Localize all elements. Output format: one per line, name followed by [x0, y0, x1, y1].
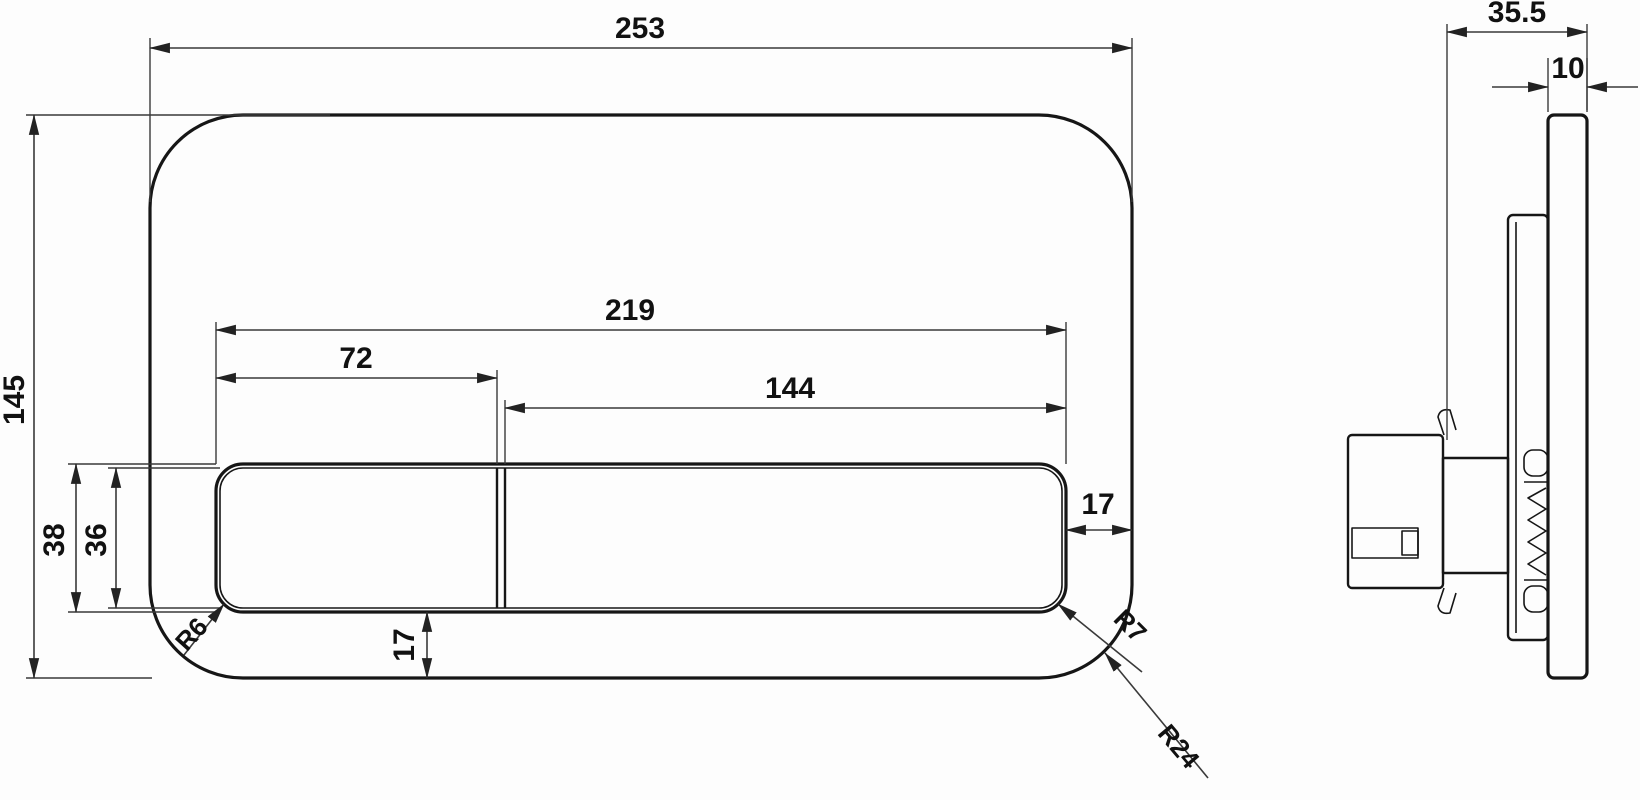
- dim-large-button-width: 144: [505, 372, 1066, 464]
- dim-button-area-width: 219: [216, 294, 1066, 464]
- side-actuator-neck: [1443, 458, 1508, 573]
- dim-label-button-inner-height: 36: [80, 523, 113, 556]
- side-spring-detail: [1524, 450, 1548, 612]
- dim-label-button-area-height: 38: [38, 523, 71, 556]
- side-mechanism-box: [1348, 435, 1443, 588]
- dim-button-area-height: 38: [38, 464, 216, 612]
- dim-small-button-width: 72: [216, 342, 497, 464]
- dim-label-small-button-width: 72: [339, 342, 372, 375]
- dim-label-overall-height: 145: [0, 375, 31, 425]
- dim-right-margin: 17: [1066, 488, 1132, 530]
- technical-drawing-canvas: 253 145 38 36 219: [0, 0, 1640, 800]
- dim-overall-height: 145: [0, 115, 330, 678]
- dim-label-plate-thickness: 10: [1551, 52, 1584, 85]
- dim-plate-thickness: 10: [1492, 52, 1638, 112]
- dim-label-right-margin: 17: [1081, 488, 1114, 521]
- latch-tab-top: [1524, 450, 1548, 476]
- side-plunger: [1352, 528, 1418, 558]
- dim-label-overall-width: 253: [615, 12, 665, 45]
- side-frame-slab: [1508, 215, 1548, 640]
- dim-label-bottom-margin: 17: [388, 628, 421, 661]
- dim-bottom-margin: 17: [388, 612, 427, 678]
- latch-tab-bottom: [1524, 586, 1548, 612]
- dim-label-overall-depth: 35.5: [1488, 0, 1546, 29]
- technical-drawing-page: 253 145 38 36 219: [0, 0, 1640, 800]
- side-plunger-cap: [1402, 531, 1418, 555]
- dim-overall-width: 253: [150, 12, 1132, 202]
- button-strip-outer: [216, 464, 1066, 612]
- dim-label-button-area-width: 219: [605, 294, 655, 327]
- radius-callout-plate-corner: R24: [1105, 653, 1208, 778]
- side-plate-panel: [1548, 115, 1587, 678]
- dim-label-large-button-width: 144: [765, 372, 815, 405]
- side-view: 35.5 10: [1348, 0, 1638, 678]
- radius-callout-button-area-corner: R7: [1058, 603, 1153, 672]
- button-strip-inner: [220, 468, 1062, 608]
- plate-outline: [150, 115, 1132, 678]
- side-clip-bottom: [1438, 588, 1456, 613]
- spring-zigzag: [1528, 488, 1546, 575]
- front-view: 253 145 38 36 219: [0, 12, 1208, 778]
